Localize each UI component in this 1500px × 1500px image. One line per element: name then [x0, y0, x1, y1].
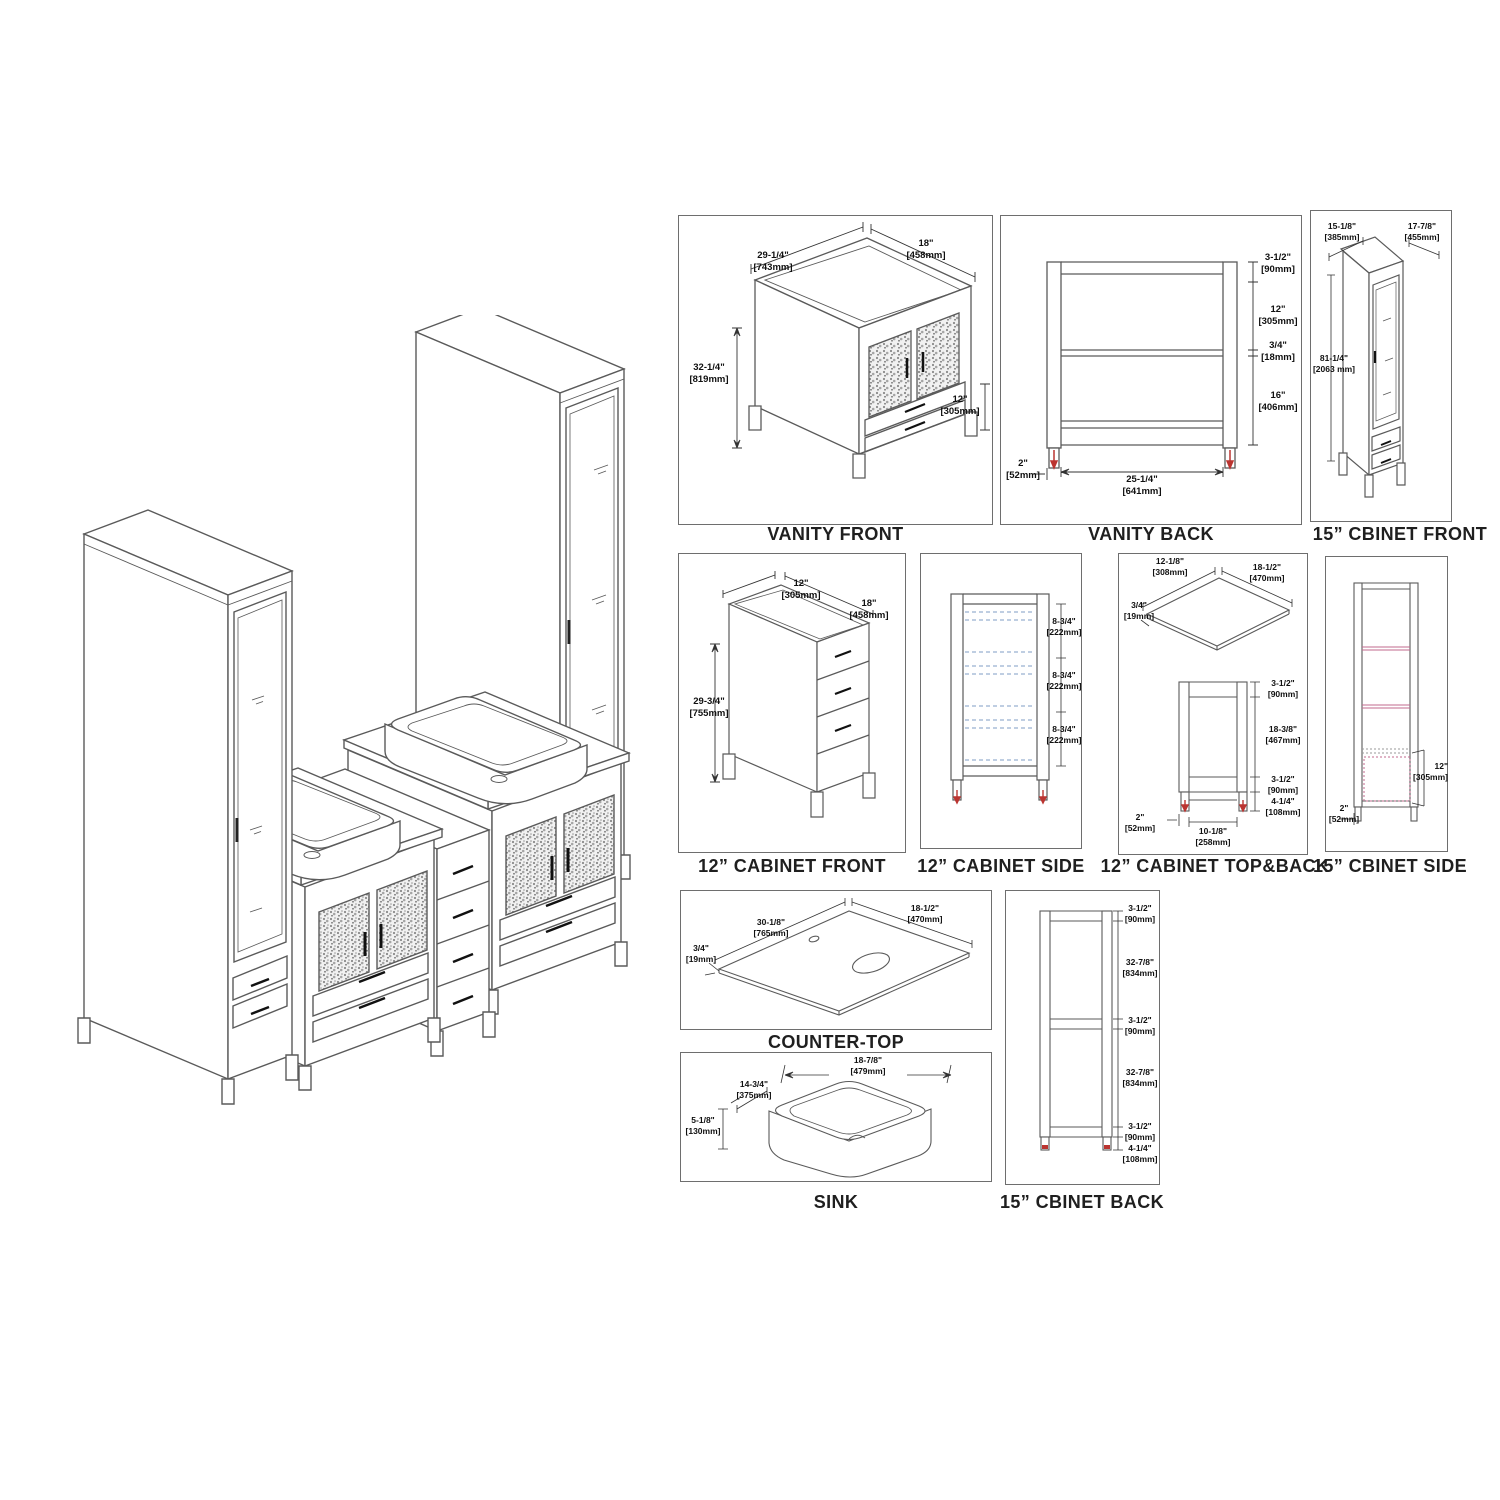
panel-vanity-front: 29-1/4"[743mm] 18"[458mm] 32-1/4"[819mm]…: [678, 215, 993, 525]
dim-vanity-back-shelf: 3/4"[18mm]: [1255, 340, 1301, 365]
dim-cbinet15-side-leg: 2"[52mm]: [1326, 803, 1362, 824]
label-cab12-front: 12” CABINET FRONT: [678, 856, 906, 878]
dim-vanity-back-leg: 2"[52mm]: [1003, 458, 1043, 483]
label-vanity-back: VANITY BACK: [1000, 524, 1302, 546]
panel-cbinet15-front: 15-1/8"[385mm] 17-7/8"[455mm] 81-1/4"[20…: [1310, 210, 1452, 522]
dim-cab12-top-depth: 18-1/2"[470mm]: [1237, 562, 1297, 583]
label-cbinet15-side: 15” CBINET SIDE: [1295, 856, 1485, 878]
panel-cab12-side: 8-3/4"[222mm] 8-3/4"[222mm] 8-3/4"[222mm…: [920, 553, 1082, 849]
dim-vanity-front-height: 32-1/4"[819mm]: [683, 362, 735, 387]
dim-cab12-back-b4: 4-1/4"[108mm]: [1259, 796, 1307, 817]
label-countertop: COUNTER-TOP: [680, 1032, 992, 1054]
dim-vanity-front-width: 29-1/4"[743mm]: [731, 250, 815, 275]
panel-sink: 18-7/8"[479mm] 14-3/4"[375mm] 5-1/8"[130…: [680, 1052, 992, 1182]
dim-vanity-back-top: 3-1/2"[90mm]: [1255, 252, 1301, 277]
panel-cab12-front: 12"[305mm] 18"[458mm] 29-3/4"[755mm]: [678, 553, 906, 853]
panel-vanity-back: 3-1/2"[90mm] 12"[305mm] 3/4"[18mm] 16"[4…: [1000, 215, 1302, 525]
dim-vanity-back-span: 25-1/4"[641mm]: [1110, 474, 1174, 499]
dim-vanity-back-mid: 12"[305mm]: [1255, 304, 1301, 329]
dim-cab12-side-s1: 8-3/4"[222mm]: [1045, 616, 1083, 637]
dim-cab12-back-b1: 3-1/2"[90mm]: [1259, 678, 1307, 699]
dim-countertop-depth: 18-1/2"[470mm]: [893, 903, 957, 924]
dim-cbinet15-front-width: 15-1/8"[385mm]: [1313, 221, 1371, 242]
spec-sheet-page: 29-1/4"[743mm] 18"[458mm] 32-1/4"[819mm]…: [0, 0, 1500, 1500]
dim-cbinet15-back-b5: 3-1/2"[90mm]: [1120, 1121, 1160, 1142]
panel-countertop: 30-1/8"[765mm] 18-1/2"[470mm] 3/4"[19mm]: [680, 890, 992, 1030]
label-cbinet15-front: 15” CBINET FRONT: [1300, 524, 1500, 546]
dim-sink-width: 18-7/8"[479mm]: [835, 1055, 901, 1076]
dim-cab12-front-width: 12"[305mm]: [771, 578, 831, 603]
dim-cbinet15-back-b3: 3-1/2"[90mm]: [1120, 1015, 1160, 1036]
dim-cab12-front-height: 29-3/4"[755mm]: [681, 696, 737, 721]
vanity-set-illustration-drawing: [45, 315, 665, 1115]
panel-cbinet15-side: 12"[305mm] 2"[52mm]: [1325, 556, 1448, 852]
dim-cbinet15-front-depth: 17-7/8"[455mm]: [1393, 221, 1451, 242]
label-sink: SINK: [680, 1192, 992, 1214]
label-cab12-side: 12” CABINET SIDE: [905, 856, 1097, 878]
dim-cbinet15-back-b1: 3-1/2"[90mm]: [1120, 903, 1160, 924]
dim-cbinet15-front-height: 81-1/4"[2063 mm]: [1305, 353, 1363, 374]
label-vanity-front: VANITY FRONT: [678, 524, 993, 546]
dim-cab12-back-b3: 3-1/2"[90mm]: [1259, 774, 1307, 795]
dim-cab12-side-s3: 8-3/4"[222mm]: [1045, 724, 1083, 745]
dim-cbinet15-back-b4: 32-7/8"[834mm]: [1120, 1067, 1160, 1088]
panel-cab12-topback: 12-1/8"[308mm] 18-1/2"[470mm] 3/4"[19mm]…: [1118, 553, 1308, 855]
dim-cbinet15-back-b6: 4-1/4"[108mm]: [1120, 1143, 1160, 1164]
dim-countertop-width: 30-1/8"[765mm]: [739, 917, 803, 938]
label-cbinet15-back: 15” CBINET BACK: [982, 1192, 1182, 1214]
dim-sink-depth: 14-3/4"[375mm]: [725, 1079, 783, 1100]
dim-cbinet15-side-niche: 12"[305mm]: [1406, 761, 1448, 782]
left-linen-cabinet: [78, 510, 298, 1104]
dim-cab12-back-b2: 18-3/8"[467mm]: [1259, 724, 1307, 745]
dim-vanity-front-depth: 18"[458mm]: [883, 238, 969, 263]
dim-cab12-top-thickness: 3/4"[19mm]: [1119, 600, 1159, 621]
vanity-set-illustration: [45, 315, 665, 1115]
dim-cab12-back-leg: 2"[52mm]: [1121, 812, 1159, 833]
cab12-side-drawing: [921, 554, 1083, 850]
dim-countertop-thickness: 3/4"[19mm]: [681, 943, 721, 964]
dim-vanity-back-lower: 16"[406mm]: [1255, 390, 1301, 415]
dim-cbinet15-back-b2: 32-7/8"[834mm]: [1120, 957, 1160, 978]
dim-cab12-side-s2: 8-3/4"[222mm]: [1045, 670, 1083, 691]
panel-cbinet15-back: 3-1/2"[90mm] 32-7/8"[834mm] 3-1/2"[90mm]…: [1005, 890, 1160, 1185]
dim-sink-height: 5-1/8"[130mm]: [683, 1115, 723, 1136]
dim-cab12-back-span: 10-1/8"[258mm]: [1183, 826, 1243, 847]
dim-vanity-front-drawers: 12"[305mm]: [939, 394, 981, 419]
dim-cab12-top-width: 12-1/8"[308mm]: [1141, 556, 1199, 577]
dim-cab12-front-depth: 18"[458mm]: [837, 598, 901, 623]
